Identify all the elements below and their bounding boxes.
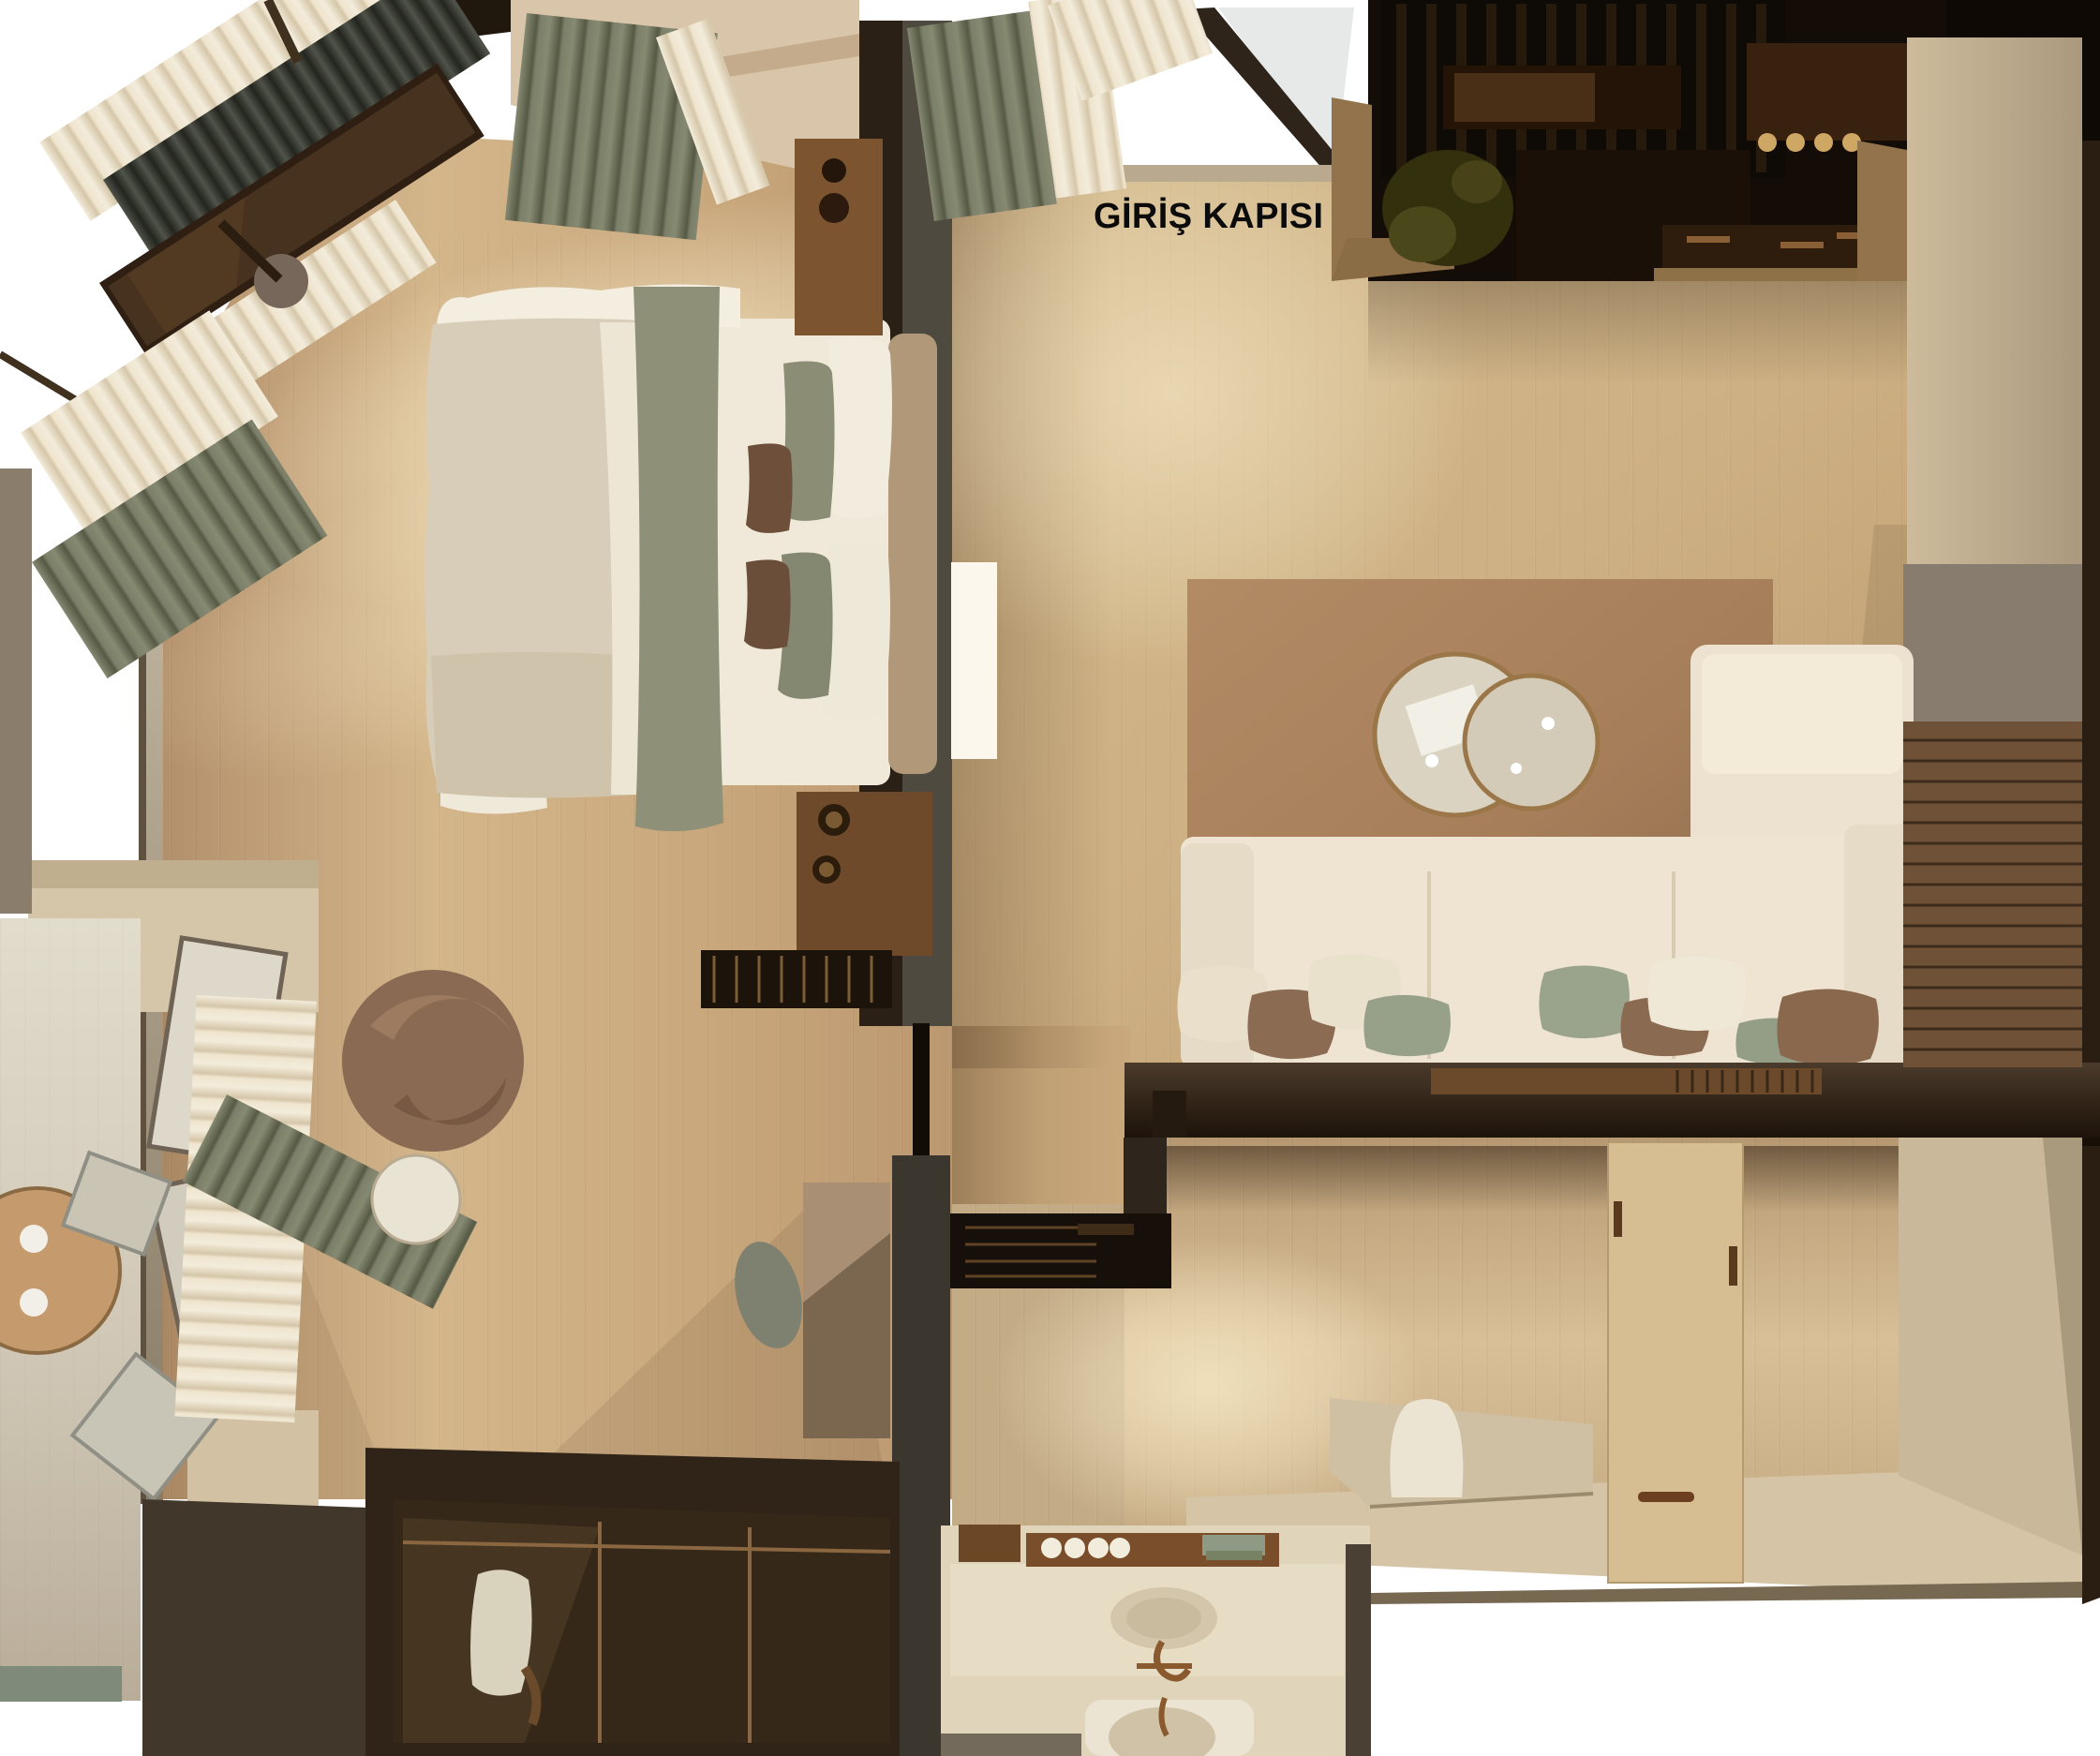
svg-text:GİRİŞ KAPISI: GİRİŞ KAPISI <box>1094 197 1324 236</box>
